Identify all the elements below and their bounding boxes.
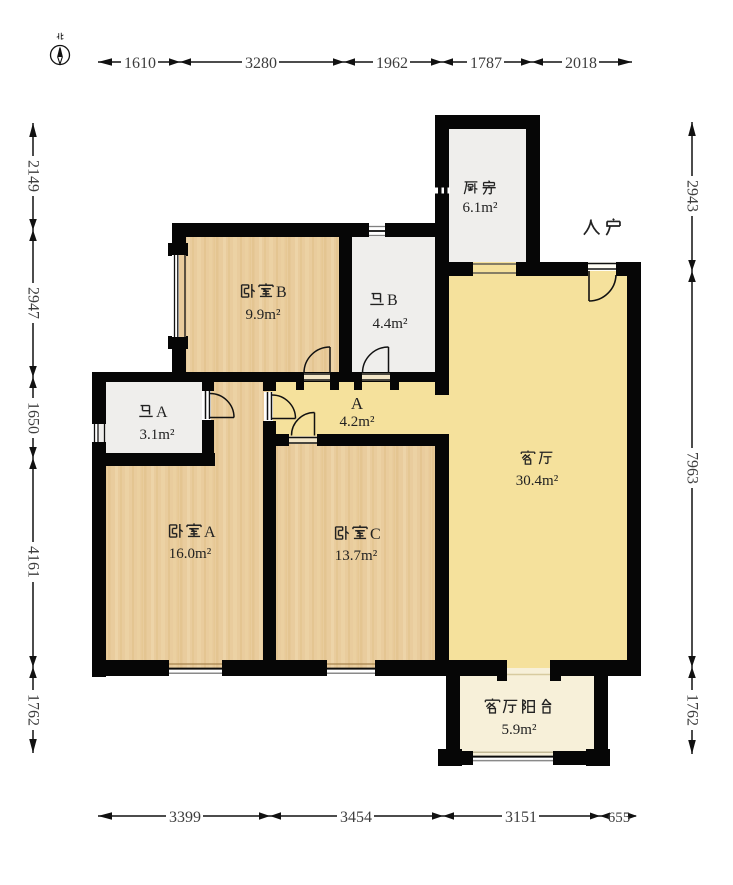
svg-text:4161: 4161 bbox=[25, 546, 42, 578]
svg-text:A: A bbox=[351, 394, 364, 413]
svg-text:4.4m²: 4.4m² bbox=[373, 316, 408, 332]
svg-text:3.1m²: 3.1m² bbox=[140, 427, 175, 443]
svg-text:2947: 2947 bbox=[25, 287, 42, 319]
svg-text:6.1m²: 6.1m² bbox=[463, 200, 498, 216]
svg-text:5.9m²: 5.9m² bbox=[502, 722, 537, 738]
svg-text:1762: 1762 bbox=[25, 694, 42, 726]
svg-text:C: C bbox=[370, 526, 381, 543]
svg-text:13.7m²: 13.7m² bbox=[335, 548, 378, 564]
svg-text:1787: 1787 bbox=[470, 55, 502, 72]
svg-text:3280: 3280 bbox=[245, 55, 277, 72]
svg-text:30.4m²: 30.4m² bbox=[516, 473, 559, 489]
svg-text:2018: 2018 bbox=[565, 55, 597, 72]
svg-text:16.0m²: 16.0m² bbox=[169, 546, 212, 562]
svg-text:2943: 2943 bbox=[684, 180, 701, 212]
svg-text:3151: 3151 bbox=[505, 809, 537, 826]
svg-text:7963: 7963 bbox=[684, 452, 701, 484]
svg-text:2149: 2149 bbox=[25, 160, 42, 192]
svg-text:4.2m²: 4.2m² bbox=[340, 414, 375, 430]
svg-text:1610: 1610 bbox=[124, 55, 156, 72]
svg-text:A: A bbox=[156, 404, 168, 421]
svg-text:9.9m²: 9.9m² bbox=[246, 307, 281, 323]
svg-text:A: A bbox=[204, 524, 216, 541]
svg-text:1962: 1962 bbox=[376, 55, 408, 72]
svg-text:B: B bbox=[276, 284, 287, 301]
svg-text:3399: 3399 bbox=[169, 809, 201, 826]
svg-text:B: B bbox=[387, 292, 398, 309]
svg-text:3454: 3454 bbox=[340, 809, 372, 826]
svg-text:1650: 1650 bbox=[25, 402, 42, 434]
svg-text:1762: 1762 bbox=[684, 694, 701, 726]
svg-text:655: 655 bbox=[608, 810, 631, 826]
